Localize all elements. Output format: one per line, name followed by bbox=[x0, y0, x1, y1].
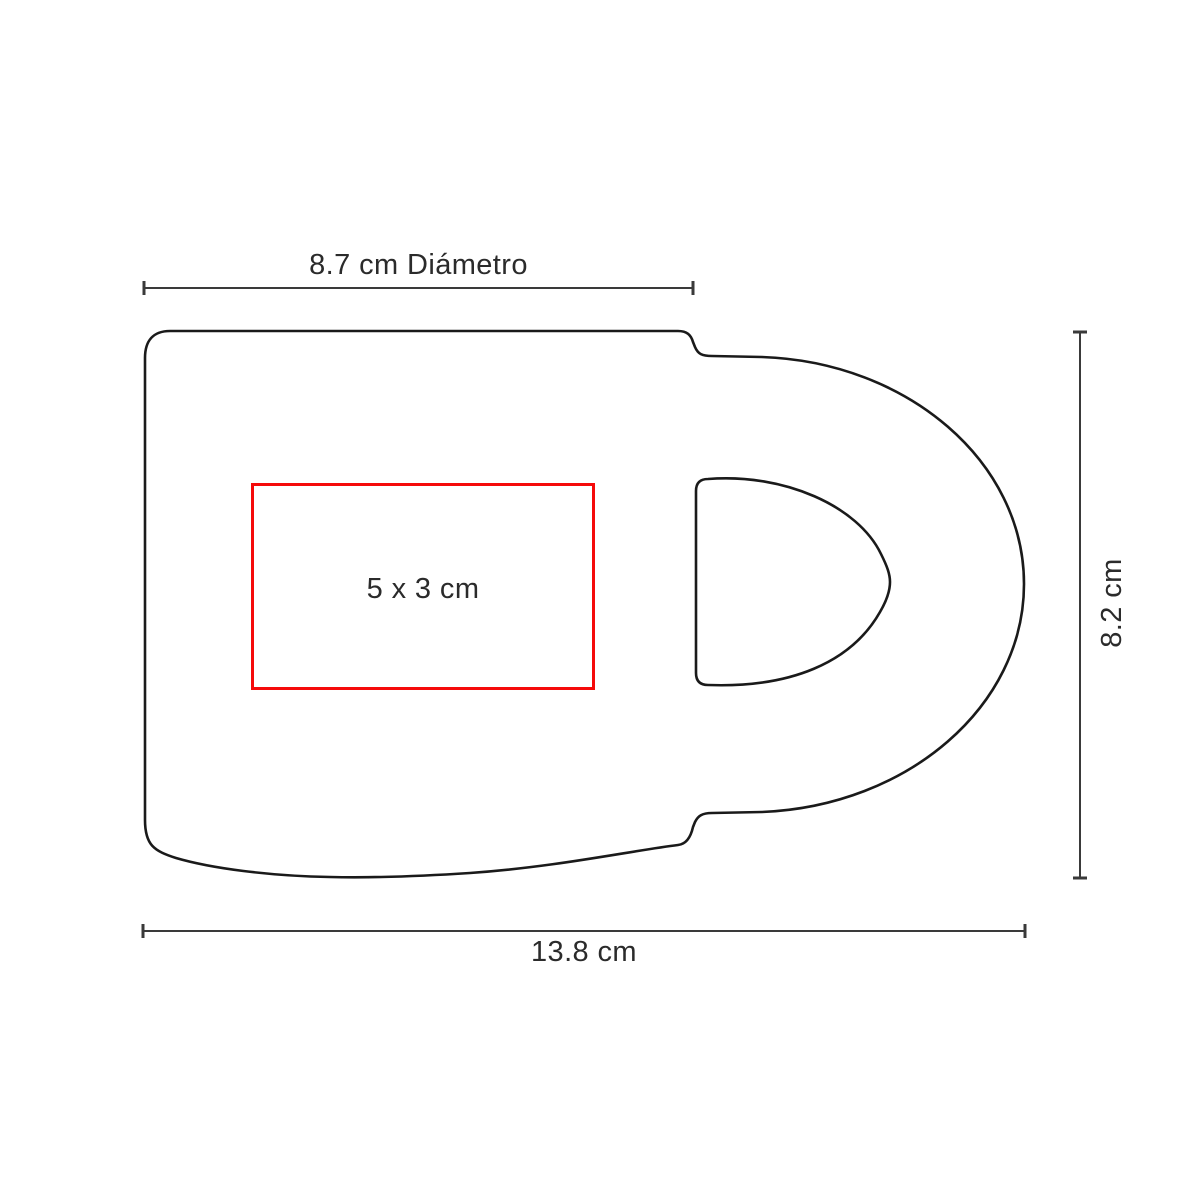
mug-dimension-diagram: 5 x 3 cm 8.7 cm Diámetro 8.2 cm 13.8 cm bbox=[0, 0, 1200, 1200]
print-area-label: 5 x 3 cm bbox=[367, 567, 480, 606]
diameter-dimension-label: 8.7 cm Diámetro bbox=[143, 249, 694, 282]
diagram-drawing bbox=[0, 0, 1200, 1200]
height-dimension-label: 8.2 cm bbox=[1092, 503, 1132, 703]
diameter-dimension-line bbox=[144, 281, 693, 295]
mug-handle-hole bbox=[696, 478, 890, 685]
height-dimension-line bbox=[1073, 332, 1087, 878]
print-area-box: 5 x 3 cm bbox=[251, 483, 595, 690]
width-dimension-label: 13.8 cm bbox=[143, 936, 1025, 969]
